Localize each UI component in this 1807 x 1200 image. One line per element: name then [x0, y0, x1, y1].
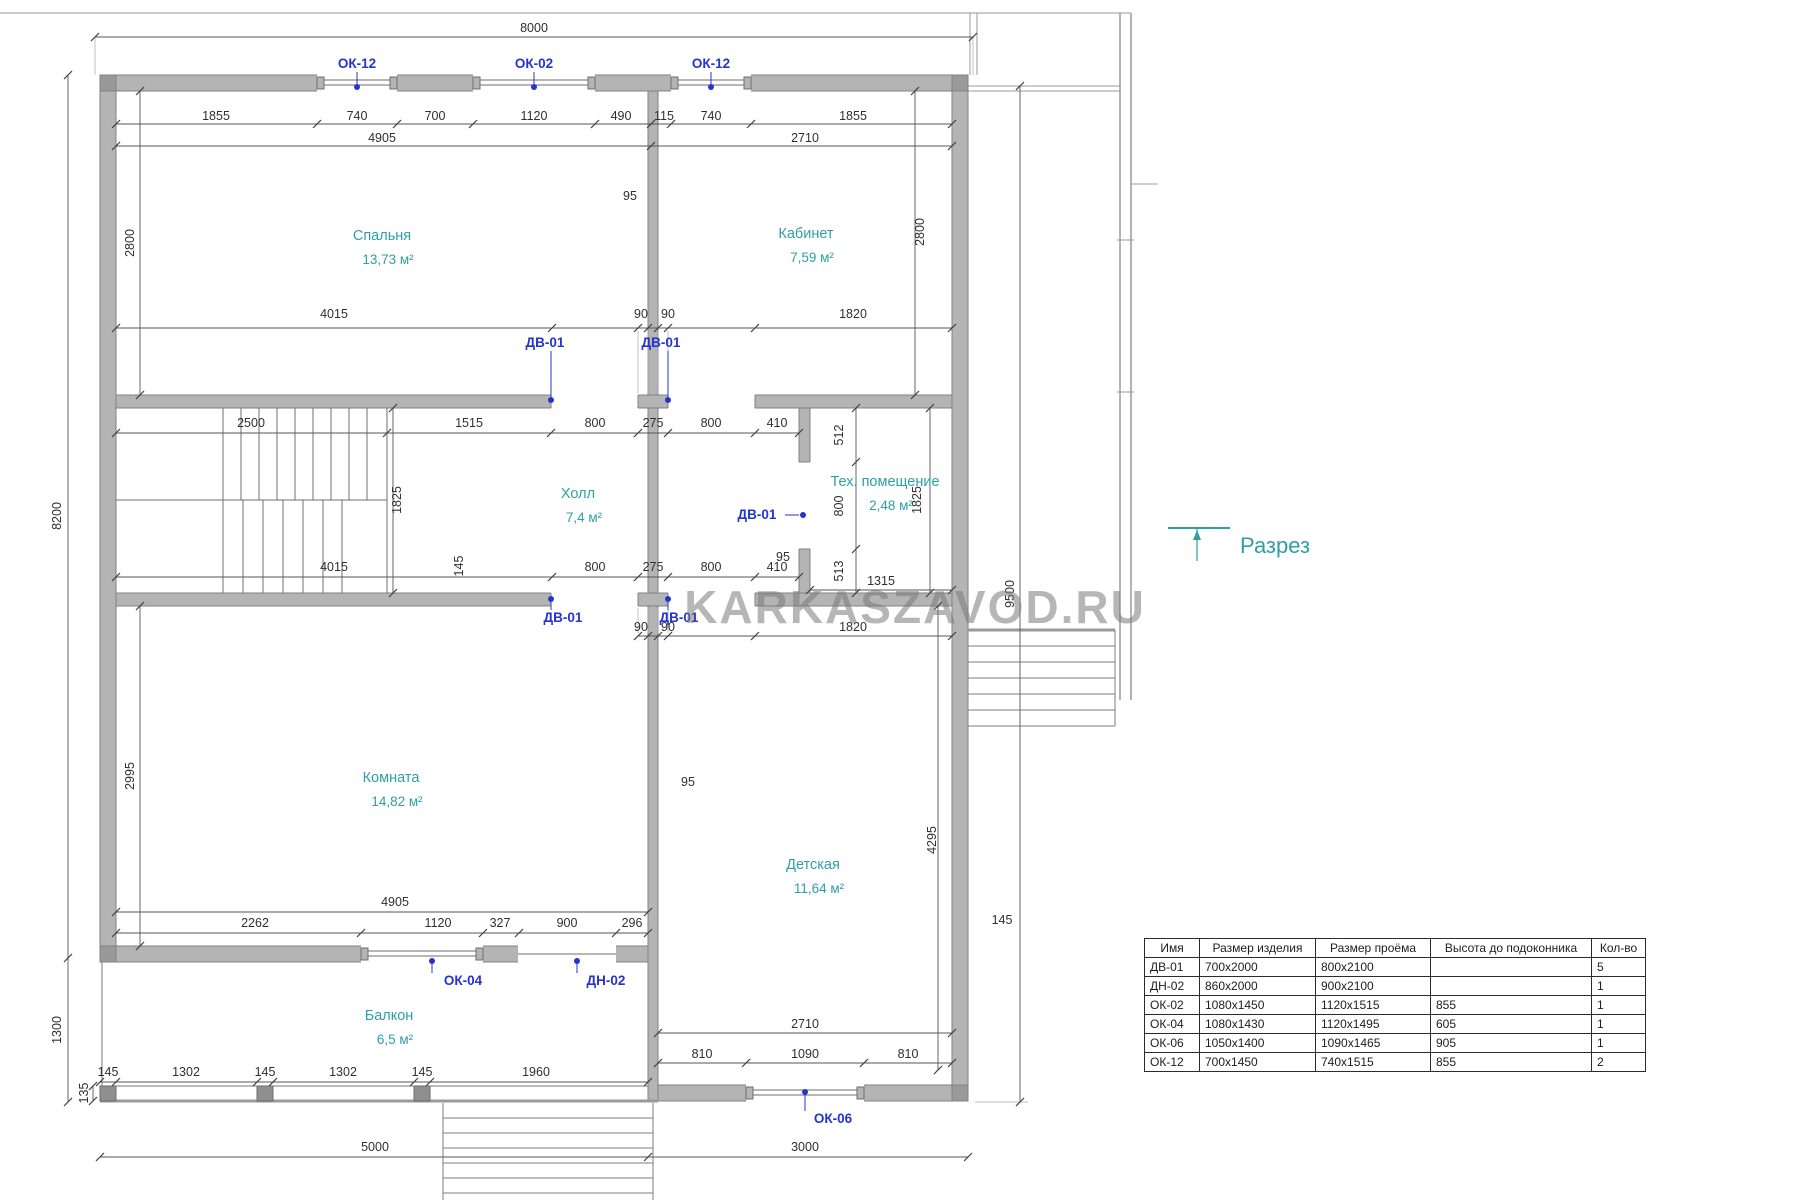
spec-table-cell: 1120x1515 [1316, 996, 1431, 1015]
spec-table-row: ОК-12700x1450740x15158552 [1145, 1053, 1646, 1072]
opening-label: ОК-12 [338, 56, 376, 71]
spec-table-cell: 740x1515 [1316, 1053, 1431, 1072]
spec-table-cell: 900x2100 [1316, 977, 1431, 996]
dimension-text: 2262 [241, 916, 269, 930]
dimension-text: 2995 [123, 762, 137, 790]
dimension-text: 2710 [791, 1017, 819, 1031]
spec-table-header: Высота до подоконника [1431, 939, 1592, 958]
dimension-text: 5000 [361, 1140, 389, 1154]
spec-table-cell: 800x2100 [1316, 958, 1431, 977]
dimension-text: 145 [992, 913, 1013, 927]
dimension-text: 700 [425, 109, 446, 123]
dimension-text: 1855 [202, 109, 230, 123]
opening-label: ДВ-01 [544, 610, 583, 625]
opening-label: ДН-02 [587, 973, 626, 988]
spec-table-row: ОК-041080x14301120x14956051 [1145, 1015, 1646, 1034]
dimension-text: 513 [832, 561, 846, 582]
dimension-text: 145 [452, 556, 466, 577]
spec-table-cell: 855 [1431, 1053, 1592, 1072]
dimension-text: 8000 [520, 21, 548, 35]
steps-south [443, 1103, 653, 1200]
dimension-text: 3000 [791, 1140, 819, 1154]
dimension-text: 810 [898, 1047, 919, 1061]
spec-table-cell [1431, 977, 1592, 996]
room-area-label: 11,64 м² [794, 881, 845, 896]
spec-table-cell [1431, 958, 1592, 977]
spec-table-cell: 605 [1431, 1015, 1592, 1034]
dimension-text: 90 [634, 307, 648, 321]
watermark-text: KARKASZAVOD.RU [684, 581, 1146, 633]
dimension-text: 1302 [329, 1065, 357, 1079]
dimension-text: 1960 [522, 1065, 550, 1079]
room-name-label: Кабинет [778, 226, 834, 242]
opening-label: ОК-06 [814, 1111, 853, 1126]
dimension-text: 800 [701, 560, 722, 574]
dimension-text: 1090 [791, 1047, 819, 1061]
opening-marker-dot [800, 512, 806, 518]
dimension-text: 1820 [839, 307, 867, 321]
steps-east [968, 630, 1115, 726]
room-name-label: Спальня [353, 228, 411, 244]
dimension-text: 145 [412, 1065, 433, 1079]
dimension-text: 410 [767, 416, 788, 430]
openings-spec-table: ИмяРазмер изделияРазмер проёмаВысота до … [1144, 938, 1646, 1072]
dimension-text: 2500 [237, 416, 265, 430]
spec-table-cell: ОК-12 [1145, 1053, 1200, 1072]
dimension-text: 1120 [521, 109, 548, 123]
room-name-label: Холл [561, 486, 595, 502]
spec-table-cell: 855 [1431, 996, 1592, 1015]
spec-table-cell: 1120x1495 [1316, 1015, 1431, 1034]
spec-table-header: Размер изделия [1200, 939, 1316, 958]
opening-label: ДВ-01 [642, 335, 681, 350]
dimension-text: 800 [585, 560, 606, 574]
spec-table-cell: 700x1450 [1200, 1053, 1316, 1072]
spec-table-cell: ОК-04 [1145, 1015, 1200, 1034]
dimension-text: 115 [654, 109, 674, 123]
spec-table-cell: 905 [1431, 1034, 1592, 1053]
dimension-text: 800 [701, 416, 722, 430]
dimension-text: 740 [347, 109, 368, 123]
spec-table-cell: 1080x1430 [1200, 1015, 1316, 1034]
room-name-label: Комната [363, 770, 421, 786]
dimension-text: 1300 [50, 1016, 64, 1044]
spec-table-cell: 1 [1592, 977, 1646, 996]
spec-table-row: ОК-021080x14501120x15158551 [1145, 996, 1646, 1015]
opening-label: ДВ-01 [526, 335, 565, 350]
spec-table-cell: 2 [1592, 1053, 1646, 1072]
room-area-label: 7,59 м² [790, 250, 834, 265]
spec-table-cell: 1 [1592, 1015, 1646, 1034]
spec-table-header: Кол-во [1592, 939, 1646, 958]
spec-table-cell: ДВ-01 [1145, 958, 1200, 977]
section-label: Разрез [1240, 533, 1310, 558]
room-name-label: Балкон [365, 1008, 414, 1024]
spec-table-cell: 1050x1400 [1200, 1034, 1316, 1053]
spec-table-row: ОК-061050x14001090x14659051 [1145, 1034, 1646, 1053]
dimension-text: 275 [643, 416, 664, 430]
dimension-text: 145 [98, 1065, 119, 1079]
opening-label: ОК-02 [515, 56, 553, 71]
floor-plan-page: 8000185574070011204901157401855490527109… [0, 0, 1807, 1200]
dimension-text: 90 [634, 620, 648, 634]
dimension-text: 1515 [455, 416, 483, 430]
room-area-label: 6,5 м² [377, 1032, 414, 1047]
dimension-text: 800 [585, 416, 606, 430]
dimension-text: 4905 [368, 131, 396, 145]
dimension-text: 296 [622, 916, 643, 930]
dimension-text: 1302 [172, 1065, 200, 1079]
spec-table-cell: ДН-02 [1145, 977, 1200, 996]
spec-table-cell: ОК-06 [1145, 1034, 1200, 1053]
dimension-text: 95 [681, 775, 695, 789]
dimension-text: 145 [255, 1065, 276, 1079]
spec-table-cell: 860x2000 [1200, 977, 1316, 996]
spec-table-cell: 700x2000 [1200, 958, 1316, 977]
dimension-text: 2800 [913, 218, 927, 246]
extension-lines [95, 37, 1028, 1102]
room-area-label: 13,73 м² [362, 252, 414, 267]
spec-table-cell: 1090x1465 [1316, 1034, 1431, 1053]
dimension-text: 512 [832, 425, 846, 446]
dimension-text: 327 [490, 916, 511, 930]
opening-label: ОК-12 [692, 56, 730, 71]
spec-table-header: Размер проёма [1316, 939, 1431, 958]
dimension-text: 4905 [381, 895, 409, 909]
dimension-text: 810 [692, 1047, 713, 1061]
dimension-text: 2710 [791, 131, 819, 145]
dimension-text: 410 [767, 560, 788, 574]
section-mark: Разрез [1168, 528, 1310, 561]
room-name-label: Детская [786, 857, 840, 873]
spec-table-cell: 1 [1592, 1034, 1646, 1053]
opening-label: ДВ-01 [738, 507, 777, 522]
dimension-text: 4295 [925, 826, 939, 854]
dimension-text: 1855 [839, 109, 867, 123]
dimension-text: 2800 [123, 229, 137, 257]
dimension-text: 275 [643, 560, 664, 574]
dimension-text: 135 [77, 1083, 91, 1104]
dimension-text: 740 [701, 109, 722, 123]
dimension-text: 4015 [320, 560, 348, 574]
spec-table-cell: ОК-02 [1145, 996, 1200, 1015]
spec-table-cell: 1080x1450 [1200, 996, 1316, 1015]
spec-table-row: ДН-02860x2000900x21001 [1145, 977, 1646, 996]
dimension-text: 900 [557, 916, 578, 930]
dimension-text: 800 [832, 496, 846, 517]
room-area-label: 2,48 м² [869, 498, 913, 513]
dimension-text: 1120 [425, 916, 452, 930]
room-area-label: 7,4 м² [566, 510, 603, 525]
spec-table-row: ДВ-01700x2000800x21005 [1145, 958, 1646, 977]
room-name-label: Тех. помещение [830, 474, 939, 490]
dimension-text: 1825 [390, 486, 404, 514]
spec-table-cell: 5 [1592, 958, 1646, 977]
dimension-text: 90 [661, 307, 675, 321]
dimension-text: 490 [611, 109, 632, 123]
dimension-text: 8200 [50, 502, 64, 530]
dimension-text: 4015 [320, 307, 348, 321]
spec-table-cell: 1 [1592, 996, 1646, 1015]
spec-table-header: Имя [1145, 939, 1200, 958]
dimension-text: 95 [623, 189, 637, 203]
room-area-label: 14,82 м² [371, 794, 423, 809]
opening-label: ОК-04 [444, 973, 483, 988]
